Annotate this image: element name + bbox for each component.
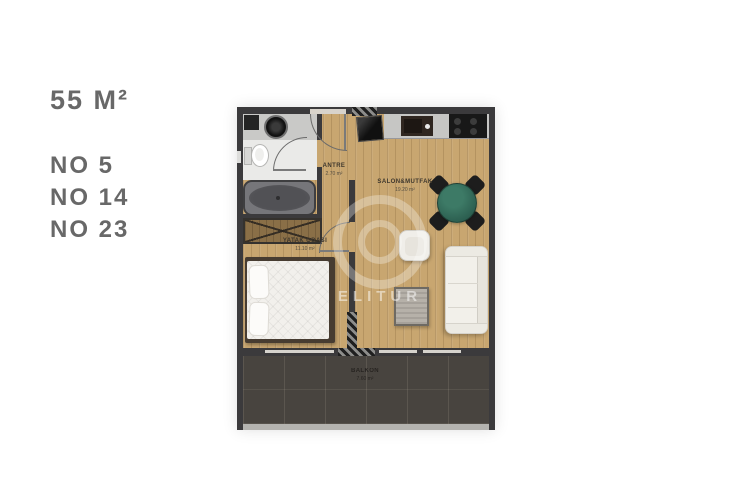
watermark-text: ELITUR <box>325 288 435 305</box>
bathroom-wall-right-lower <box>317 167 322 217</box>
room-area: 2.70 m² <box>323 171 346 177</box>
unit-number: NO 5 <box>50 150 129 182</box>
unit-number-list: NO 5 NO 14 NO 23 <box>50 150 129 246</box>
kitchen-sink-basin <box>404 119 422 133</box>
dining-table <box>437 183 477 223</box>
floor-plan: ANTRE 2.70 m² SALON&MUTFAK 19.20 m² YATA… <box>237 107 495 430</box>
bathroom-cabinet <box>244 115 259 130</box>
window <box>379 350 417 353</box>
entry-door-leaf <box>344 114 346 150</box>
watermark-logo-inner <box>358 220 402 264</box>
bathroom-door-leaf <box>273 169 306 171</box>
room-area: 11.10 m² <box>283 246 327 252</box>
sofa-arm-top <box>446 247 487 257</box>
pillow <box>248 265 269 300</box>
bathroom <box>243 114 317 215</box>
unit-number: NO 23 <box>50 214 129 246</box>
bathtub-drain <box>276 196 280 200</box>
unit-number: NO 14 <box>50 182 129 214</box>
room-name: ANTRE <box>323 163 346 169</box>
room-area: 7.60 m² <box>351 376 379 382</box>
room-label-salon: SALON&MUTFAK 19.20 m² <box>377 179 432 193</box>
washing-machine <box>264 115 288 139</box>
wall-right <box>489 107 495 430</box>
room-name: SALON&MUTFAK <box>377 179 432 185</box>
window <box>423 350 461 353</box>
room-label-bedroom: YATAK ODASI 11.10 m² <box>283 238 327 252</box>
window <box>265 350 334 353</box>
sofa-cushion-line <box>448 307 478 308</box>
toilet-seat <box>255 148 264 161</box>
wall-fixture <box>237 151 241 163</box>
room-label-antre: ANTRE 2.70 m² <box>323 163 346 177</box>
burner <box>454 128 461 135</box>
balcony-floor <box>243 356 489 424</box>
burner <box>470 128 477 135</box>
room-name: YATAK ODASI <box>283 238 327 244</box>
sofa <box>445 246 488 334</box>
shaft-column <box>347 312 357 348</box>
sofa-cushion-line <box>448 283 478 284</box>
room-area: 19.20 m² <box>377 187 432 193</box>
balcony-railing <box>243 424 489 430</box>
sofa-backrest <box>477 247 487 333</box>
sofa-arm-bottom <box>446 323 487 333</box>
balcony-door <box>338 348 375 356</box>
fridge <box>356 115 384 142</box>
burner <box>470 118 477 125</box>
burner <box>454 118 461 125</box>
room-name: BALKON <box>351 368 379 374</box>
pillow <box>248 302 269 337</box>
apartment-area-label: 55 M² <box>50 85 129 116</box>
faucet <box>425 124 430 129</box>
room-label-balcony: BALKON 7.60 m² <box>351 368 379 382</box>
